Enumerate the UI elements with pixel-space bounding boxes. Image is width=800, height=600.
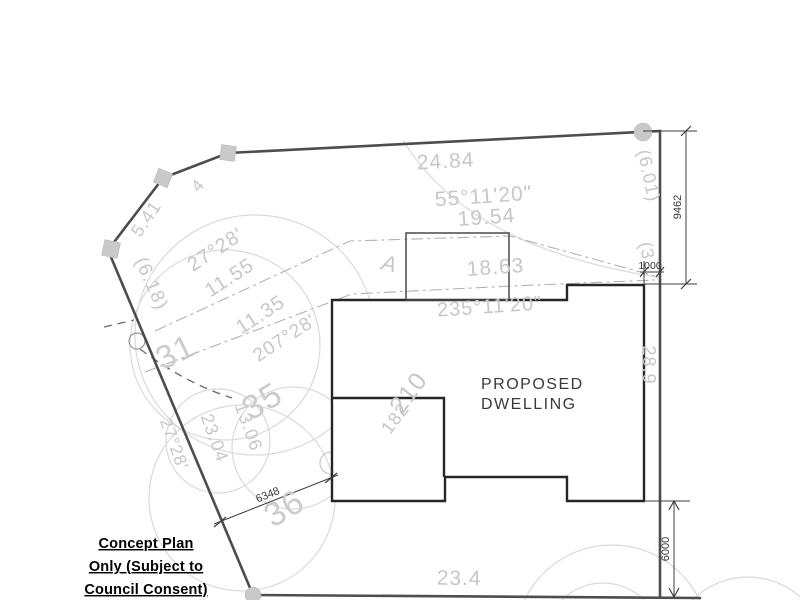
concept-site-plan: 24.84 55°11'20" 19.54 18.63 235°11'20" 2… <box>0 0 800 600</box>
corner-marker-circle <box>634 123 652 141</box>
concept-plan-note: Concept Plan Only (Subject to Council Co… <box>84 536 207 598</box>
dimension-value-1000: 1000 <box>638 260 662 272</box>
distance-label: 24.84 <box>416 149 475 175</box>
dimension-value-9462: 9462 <box>672 195 684 219</box>
distance-label: 23.04 <box>197 411 233 465</box>
bearing-label: 27°28' <box>156 416 192 473</box>
building-label-line1: PROPOSED <box>481 376 584 393</box>
building-label-line2: DWELLING <box>481 396 577 413</box>
offset-label: (3 <box>635 240 658 262</box>
note-line3: Council Consent) <box>84 582 207 598</box>
offset-label: (6.18) <box>130 254 172 313</box>
point-label-a: A <box>377 249 399 277</box>
distance-label: 23.4 <box>436 567 481 591</box>
site-plan-canvas: 24.84 55°11'20" 19.54 18.63 235°11'20" 2… <box>0 0 800 600</box>
distance-label: 19.54 <box>457 204 516 231</box>
note-line2: Only (Subject to <box>89 559 203 575</box>
distance-label: 18.63 <box>466 254 525 281</box>
canopy-circle <box>670 577 800 600</box>
dimension-value-6000: 6000 <box>660 537 672 561</box>
boundary-line-south <box>253 595 700 598</box>
dashed-tick <box>104 320 134 327</box>
corner-marker-square <box>102 240 121 259</box>
distance-label: 28.9 <box>639 345 659 384</box>
corner-marker-square <box>220 145 237 162</box>
distance-label: 4 <box>187 175 208 195</box>
corner-marker-circle <box>245 587 261 600</box>
note-line1: Concept Plan <box>98 536 193 552</box>
canopy-circle <box>515 545 709 600</box>
